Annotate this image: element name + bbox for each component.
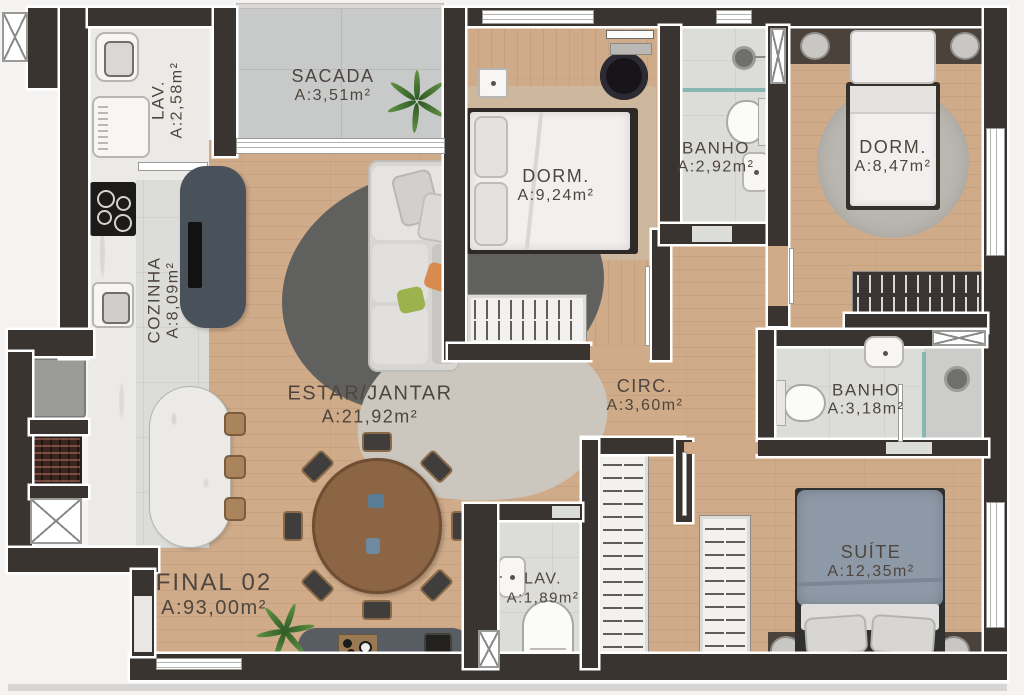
kitchen-island: [150, 387, 230, 547]
table-decor: [366, 538, 380, 554]
door-opening-suite: [684, 442, 758, 454]
bed-pillow: [804, 614, 868, 656]
wall: [8, 548, 158, 572]
balcony-slab-edge: [236, 3, 444, 9]
tv-console: [180, 166, 246, 328]
door-opening-banho-2: [886, 442, 932, 454]
unit-name: FINAL 02: [156, 569, 273, 597]
room-name: SACADA: [291, 66, 374, 87]
room-area: A:9,24m²: [518, 187, 595, 206]
pouf-chair-dorm-1: [600, 52, 648, 100]
bed-pillow: [474, 182, 508, 246]
room-area: A:12,35m²: [827, 563, 914, 582]
room-label-circ: CIRC. A:3,60m²: [607, 376, 684, 416]
bottom-slab-edge: [8, 684, 1007, 691]
door-leaf-dorm-1: [645, 266, 650, 346]
unit-area: A:93,00m²: [156, 597, 273, 621]
toilet-banho-2: [784, 384, 826, 422]
wall: [758, 330, 774, 456]
door-leaf-dorm-2: [789, 248, 794, 304]
room-area: A:8,47m²: [855, 158, 932, 177]
room-area: A:3,51m²: [291, 87, 374, 106]
window-balcony-living: [236, 138, 445, 154]
laundry-sink: [95, 32, 139, 82]
room-label-dorm-1: DORM. A:9,24m²: [518, 166, 595, 206]
bed-headboard-cushion: [850, 30, 936, 84]
tv-screen: [188, 222, 202, 288]
dining-table: [296, 450, 458, 602]
plant: [388, 55, 446, 147]
tv-wall-dorm-1: [606, 30, 654, 39]
cooktop: [90, 182, 136, 236]
wall: [758, 440, 988, 456]
toilet-lavabo: [522, 600, 574, 662]
wall: [30, 486, 88, 498]
shower-pipe: [754, 56, 768, 58]
room-label-lav-laundry: LAV. A:2,58m²: [149, 62, 188, 139]
room-area: A:8,09m²: [165, 257, 184, 344]
floor-plan: LAV. A:2,58m² SACADA A:3,51m² DORM. A:9,…: [0, 0, 1024, 695]
nightstand-dorm-2: [800, 32, 830, 60]
room-name: COZINHA: [145, 257, 165, 344]
door-opening-dorm-2: [768, 246, 788, 306]
entry-door-opening: [134, 596, 152, 652]
shower-glass-banho-1: [682, 88, 768, 92]
side-table-dorm-1: [478, 68, 508, 98]
room-name: CIRC.: [607, 376, 684, 397]
wall: [8, 352, 32, 572]
wall: [130, 654, 1007, 680]
sink-banho-2: [864, 336, 904, 368]
room-name: LAV.: [149, 62, 169, 139]
duct-shaft: [770, 28, 786, 84]
washing-machine: [92, 96, 150, 158]
room-area: A:3,60m²: [607, 397, 684, 416]
room-area: A:2,58m²: [169, 62, 188, 139]
fridge: [30, 358, 86, 418]
wall: [448, 344, 590, 360]
door-leaf-suite: [682, 452, 687, 516]
room-label-sacada: SACADA A:3,51m²: [291, 66, 374, 106]
room-label-dorm-2: DORM. A:8,47m²: [855, 137, 932, 177]
room-label-banho-1: BANHO A:2,92m²: [678, 139, 755, 178]
wall: [652, 230, 670, 360]
shower-glass-banho-2: [922, 352, 926, 440]
room-area: A:21,92m²: [287, 406, 452, 427]
island-stool: [224, 412, 246, 436]
wardrobe-closet-1: [598, 453, 648, 667]
unit-label: FINAL 02 A:93,00m²: [156, 569, 273, 621]
room-label-suite: SUÍTE A:12,35m²: [827, 542, 914, 582]
wall: [582, 440, 598, 668]
dining-chair: [283, 511, 303, 541]
floor-shower-2: [924, 346, 986, 442]
single-bed-dorm-2: [846, 28, 940, 210]
door-opening-banho-1: [692, 226, 732, 242]
room-area: A:3,18m²: [828, 401, 905, 420]
room-label-cozinha: COZINHA A:8,09m²: [145, 257, 184, 344]
toilet-tank-banho-2: [776, 380, 786, 426]
duct-shaft: [478, 630, 500, 668]
room-name: LAV.: [507, 571, 580, 590]
bed-pillow: [870, 614, 936, 656]
room-label-lavabo: LAV. A:1,89m²: [507, 571, 580, 608]
window-banho-1-top: [716, 10, 752, 24]
kitchen-sink: [92, 282, 134, 328]
duct-shaft: [932, 330, 986, 346]
room-name: DORM.: [518, 166, 595, 187]
shower-head-banho-1: [732, 46, 756, 70]
window-dorm-2-right: [986, 128, 1005, 256]
room-label-estar-jantar: ESTAR/JANTAR A:21,92m²: [287, 383, 452, 428]
duct-shaft: [2, 12, 28, 62]
door-opening-lavabo: [552, 506, 580, 518]
tv-shelf-dorm-1: [610, 43, 652, 55]
table-decor: [368, 494, 384, 508]
duct-shaft: [30, 498, 82, 544]
wardrobe-dorm-2: [853, 272, 985, 318]
window-suite-right: [986, 502, 1005, 628]
dining-chair: [362, 432, 392, 452]
room-name: BANHO: [678, 139, 755, 159]
room-name: BANHO: [828, 381, 905, 401]
island-stool: [224, 455, 246, 479]
dining-chair: [362, 600, 392, 620]
room-label-banho-2: BANHO A:3,18m²: [828, 381, 905, 420]
wine-rack: [30, 436, 82, 484]
island-stool: [224, 497, 246, 521]
door-opening-dorm-1: [590, 346, 650, 360]
nightstand-dorm-2: [950, 32, 980, 60]
window-bottom-left: [156, 658, 242, 670]
room-name: ESTAR/JANTAR: [287, 383, 452, 407]
room-name: DORM.: [855, 137, 932, 158]
shower-head-banho-2: [944, 366, 970, 392]
wardrobe-dorm-1: [468, 295, 586, 345]
dining-chair: [419, 568, 454, 603]
bed-pillow: [474, 116, 508, 178]
window-dorm-1-top: [482, 10, 594, 24]
room-area: A:2,92m²: [678, 159, 755, 178]
wardrobe-closet-2: [700, 516, 750, 666]
wall: [60, 8, 88, 358]
wall: [30, 420, 88, 434]
wall: [660, 26, 680, 226]
wall: [214, 8, 236, 156]
room-area: A:1,89m²: [507, 590, 580, 608]
room-name: SUÍTE: [827, 542, 914, 563]
wall: [444, 8, 465, 360]
